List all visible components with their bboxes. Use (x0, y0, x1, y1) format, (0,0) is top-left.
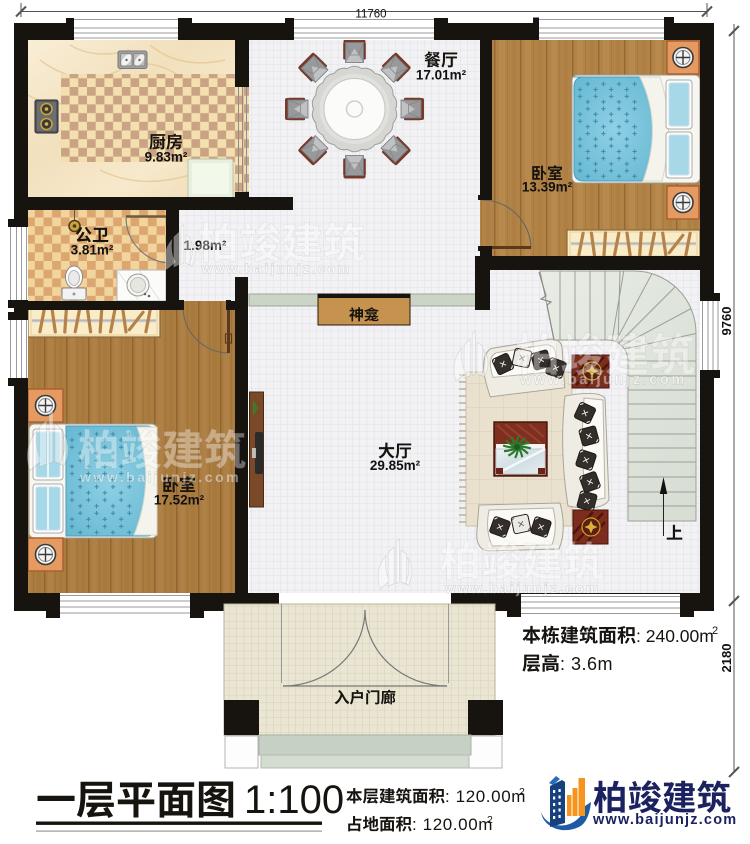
svg-text:13.39m²: 13.39m² (522, 180, 573, 195)
svg-text:11760: 11760 (355, 9, 386, 21)
svg-text:2: 2 (712, 625, 718, 637)
svg-text:29.85m²: 29.85m² (370, 458, 421, 473)
svg-text:3.81m²: 3.81m² (71, 243, 114, 258)
svg-text:www.baijunjz.com: www.baijunjz.com (444, 581, 600, 596)
svg-text:2180: 2180 (719, 644, 734, 673)
svg-text:: 240.00m: : 240.00m (636, 626, 714, 646)
svg-text:www.baijunjz.com: www.baijunjz.com (79, 469, 241, 485)
svg-text:www.baijunjz.com: www.baijunjz.com (201, 261, 352, 276)
svg-text:1:100: 1:100 (244, 778, 344, 822)
svg-text:2: 2 (487, 814, 493, 826)
svg-text:17.52m²: 17.52m² (154, 493, 205, 508)
svg-text:www.baijunjz.com: www.baijunjz.com (592, 812, 737, 828)
svg-text:2: 2 (519, 786, 525, 798)
svg-text:www.baijunjz.com: www.baijunjz.com (519, 372, 687, 388)
svg-text:9.83m²: 9.83m² (145, 150, 188, 165)
svg-text:: 120.00m: : 120.00m (412, 815, 493, 834)
svg-text:: 3.6m: : 3.6m (560, 654, 613, 674)
svg-text:17.01m²: 17.01m² (416, 68, 467, 83)
svg-text:9760: 9760 (719, 307, 734, 336)
svg-text:: 120.00m: : 120.00m (445, 787, 526, 806)
